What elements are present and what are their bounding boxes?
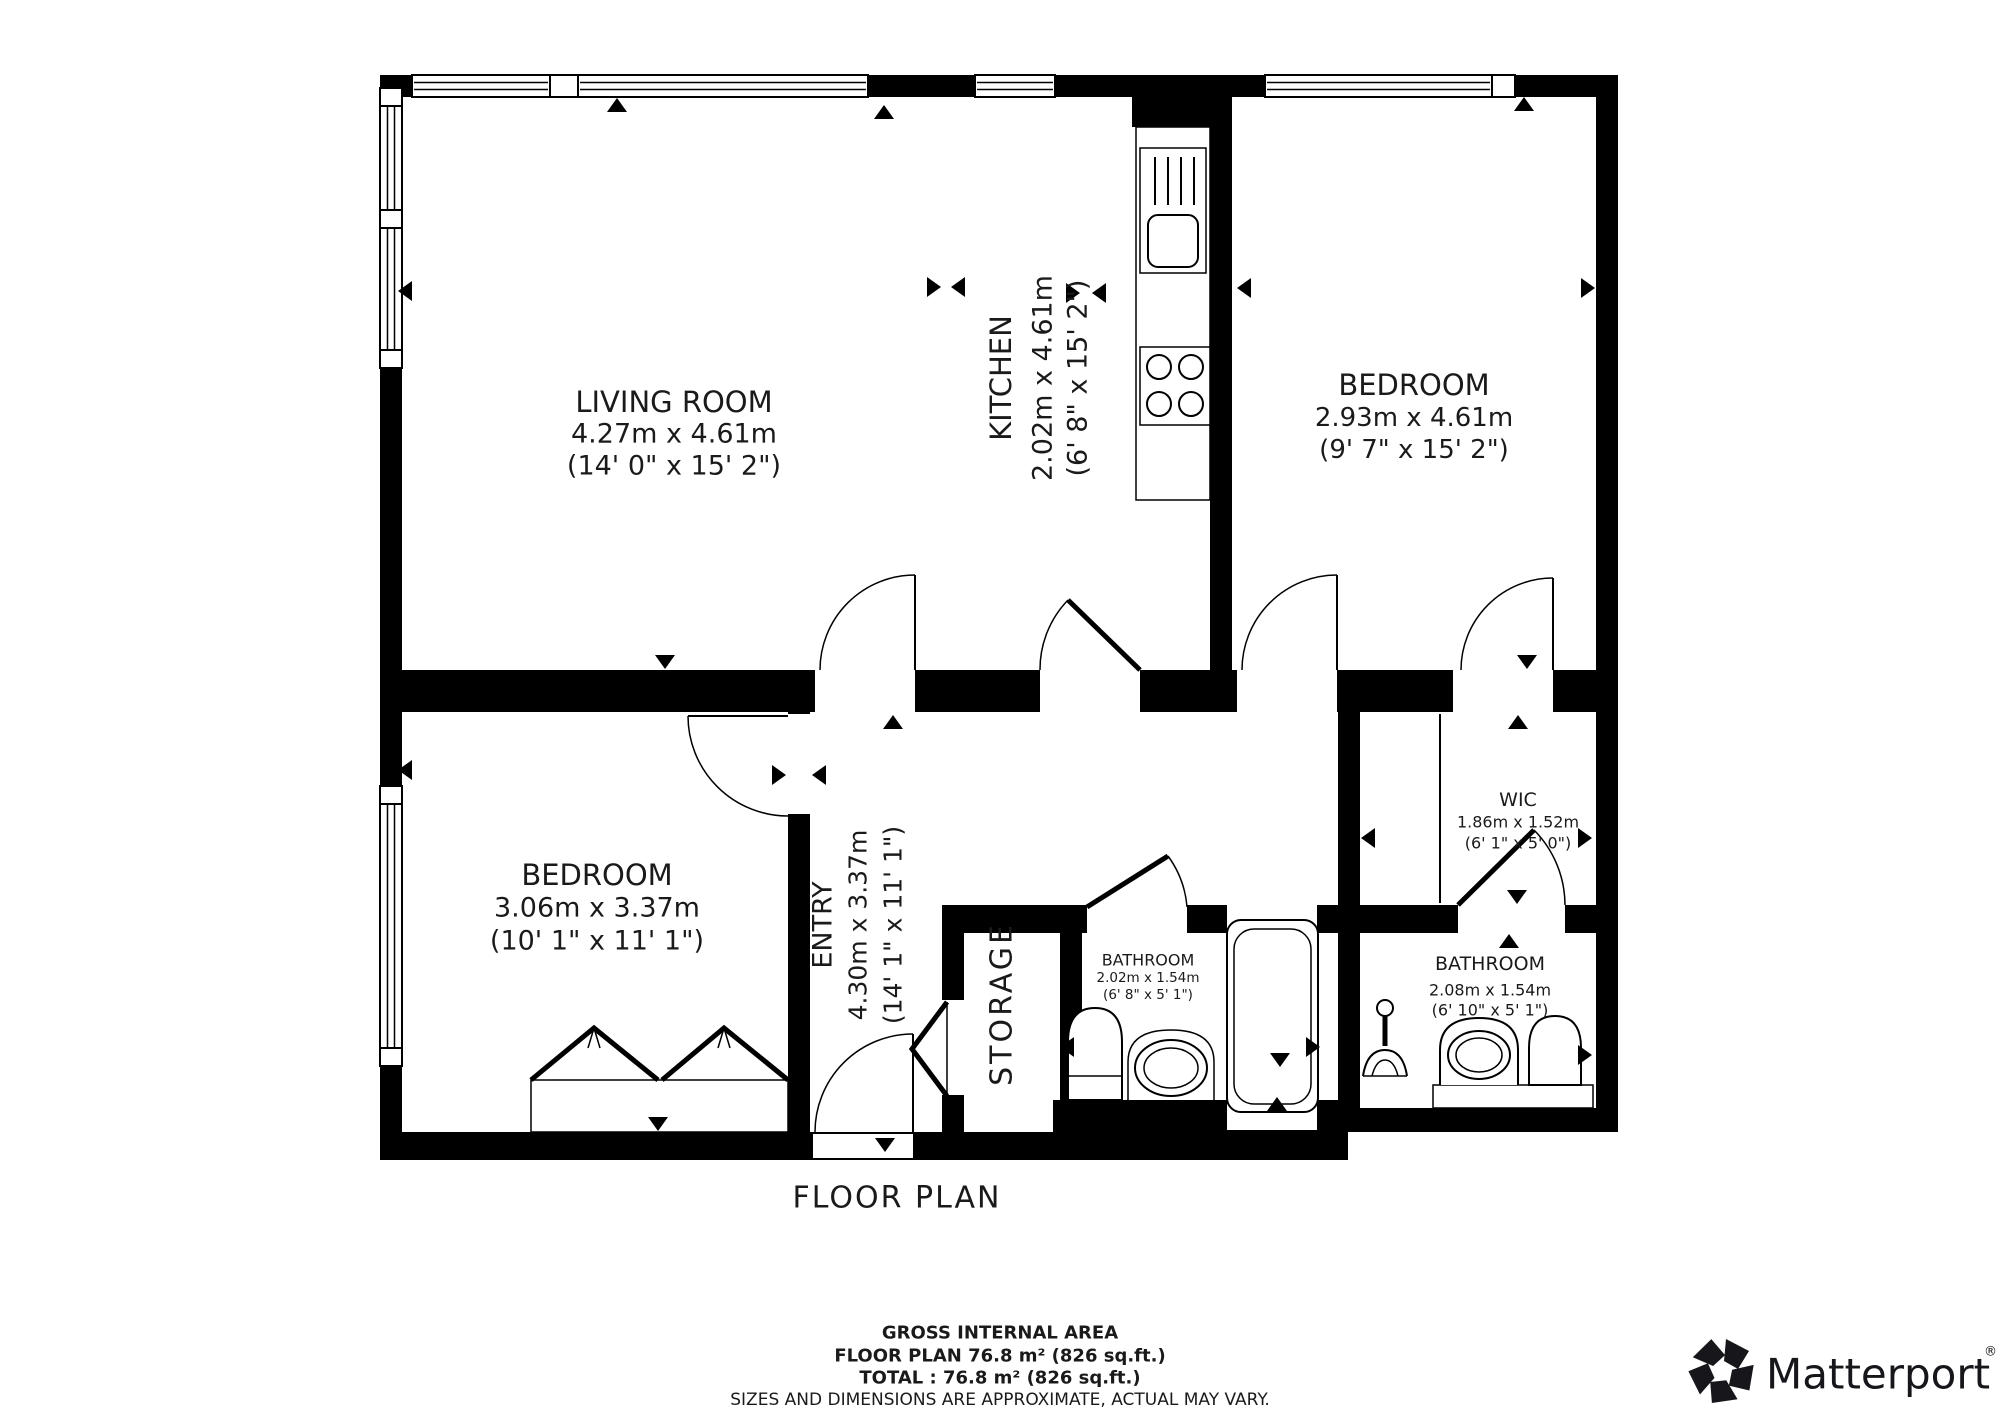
door-bedroom-right	[1242, 575, 1337, 670]
bedroom-right-metric: 2.93m x 4.61m	[1315, 403, 1513, 433]
wic-imperial: (6' 1" x 5' 0")	[1465, 834, 1572, 853]
opening-living-door	[815, 668, 915, 714]
window-sill-2	[380, 210, 402, 228]
kitchen-metric: 2.02m x 4.61m	[1028, 275, 1059, 481]
label-bedroom-right: BEDROOM 2.93m x 4.61m (9' 7" x 15' 2")	[1315, 368, 1513, 465]
entry-name: ENTRY	[808, 881, 839, 969]
wall-bath-left-top-c	[1317, 905, 1360, 933]
label-kitchen: KITCHEN 2.02m x 4.61m (6' 8" x 15' 2")	[984, 275, 1094, 481]
bedroom-left-name: BEDROOM	[521, 858, 672, 892]
sink-right	[1440, 1018, 1518, 1085]
wall-bath-left-top-b	[1187, 905, 1227, 933]
kitchen-stove	[1140, 347, 1210, 425]
toilet-left	[1068, 1008, 1122, 1100]
door-living-room	[820, 575, 915, 670]
wall-bath-right-bottom	[1338, 1108, 1618, 1132]
window-bedroom-left-wall	[380, 786, 402, 1066]
vanity-counter-right	[1433, 1085, 1593, 1108]
wall-storage-left-upper	[942, 905, 964, 1000]
door-wic-from-bedroom	[1461, 578, 1553, 670]
closet-bedroom-left	[531, 1028, 788, 1132]
sink-left	[1128, 1030, 1214, 1100]
opening-wic-door	[1453, 668, 1553, 714]
window-living-top-1	[412, 75, 550, 97]
bathroom-right-name: BATHROOM	[1435, 953, 1545, 975]
label-living-room: LIVING ROOM 4.27m x 4.61m (14' 0" x 15' …	[567, 385, 781, 482]
window-sill-1	[380, 88, 402, 106]
bathroom-left-imperial: (6' 8" x 5' 1")	[1103, 987, 1193, 1003]
footer-total-area: TOTAL : 76.8 m² (826 sq.ft.)	[859, 1368, 1140, 1389]
kitchen-name: KITCHEN	[984, 315, 1018, 441]
wall-right	[1596, 75, 1618, 1132]
bedroom-left-metric: 3.06m x 3.37m	[494, 893, 700, 924]
wic-name: WIC	[1499, 789, 1537, 811]
storage-name: STORAGE	[985, 922, 1020, 1086]
registered-mark: ®	[1984, 1345, 1997, 1360]
living-room-metric: 4.27m x 4.61m	[571, 419, 777, 450]
opening-bedroom-left-door	[786, 714, 812, 814]
opening-front-door	[813, 1134, 913, 1158]
bathroom-right-imperial: (6' 10" x 5' 1")	[1432, 1001, 1549, 1020]
page-title: FLOOR PLAN	[793, 1181, 1002, 1216]
label-entry: ENTRY 4.30m x 3.37m (14' 1" x 11' 1")	[808, 826, 908, 1024]
kitchen-sink-unit	[1140, 148, 1206, 273]
label-bedroom-left: BEDROOM 3.06m x 3.37m (10' 1" x 11' 1")	[490, 858, 704, 957]
living-room-name: LIVING ROOM	[575, 385, 772, 419]
kitchen-imperial: (6' 8" x 15' 2")	[1063, 280, 1094, 477]
matterport-wordmark: Matterport	[1766, 1350, 1990, 1399]
door-storage-bifold	[912, 1002, 947, 1096]
window-kitchen-top	[975, 75, 1055, 97]
entry-metric: 4.30m x 3.37m	[844, 830, 873, 1021]
shower-fixture	[1363, 1000, 1407, 1076]
footer-gross-internal-area: GROSS INTERNAL AREA	[882, 1323, 1118, 1344]
bathroom-right-metric: 2.08m x 1.54m	[1429, 981, 1551, 1000]
label-bathroom-left: BATHROOM 2.02m x 1.54m (6' 8" x 5' 1")	[1097, 951, 1200, 1004]
doors	[688, 575, 1565, 1132]
wall-wic-bottom-a	[1360, 905, 1458, 933]
footer: GROSS INTERNAL AREA FLOOR PLAN 76.8 m² (…	[730, 1323, 1269, 1410]
wic-metric: 1.86m x 1.52m	[1457, 813, 1579, 832]
window-living-top-2	[578, 75, 868, 97]
window-sill-5	[380, 1048, 402, 1066]
footer-disclaimer: SIZES AND DIMENSIONS ARE APPROXIMATE, AC…	[730, 1390, 1269, 1410]
matterport-logo: Matterport ®	[1681, 1335, 1997, 1410]
door-kitchen	[1040, 600, 1140, 670]
bathtub	[1227, 920, 1318, 1112]
wall-storage-left-lower	[942, 1095, 964, 1160]
bedroom-left-imperial: (10' 1" x 11' 1")	[490, 926, 704, 957]
window-sill-4	[380, 786, 402, 804]
floor-plan-page: LIVING ROOM 4.27m x 4.61m (14' 0" x 15' …	[0, 0, 2000, 1410]
label-bathroom-right: BATHROOM 2.08m x 1.54m (6' 10" x 5' 1")	[1429, 953, 1551, 1020]
door-front-entry	[815, 1034, 913, 1132]
entry-imperial: (14' 1" x 11' 1")	[879, 826, 908, 1024]
toilet-right	[1529, 1016, 1581, 1085]
window-mullion	[550, 75, 578, 97]
opening-kitchen-door	[1040, 668, 1140, 714]
matterport-pinwheel-icon	[1681, 1335, 1760, 1410]
window-bedroom-top	[1265, 75, 1492, 97]
footer-floor-plan-area: FLOOR PLAN 76.8 m² (826 sq.ft.)	[834, 1346, 1165, 1367]
opening-bedroom-door	[1237, 668, 1337, 714]
wall-kitchen-bedroom	[1210, 75, 1232, 712]
door-bathroom-left	[1087, 856, 1187, 907]
floor-plan-drawing: LIVING ROOM 4.27m x 4.61m (14' 0" x 15' …	[0, 0, 2000, 1410]
wall-mid-horizontal	[380, 670, 1618, 712]
bathroom-left-metric: 2.02m x 1.54m	[1097, 970, 1200, 986]
bedroom-right-name: BEDROOM	[1338, 368, 1489, 402]
bathroom-left-name: BATHROOM	[1102, 951, 1195, 970]
window-sill-3	[380, 350, 402, 368]
living-room-imperial: (14' 0" x 15' 2")	[567, 451, 781, 482]
window-end-box	[1492, 75, 1515, 97]
bedroom-right-imperial: (9' 7" x 15' 2")	[1319, 435, 1509, 465]
wall-wic-bottom-b	[1565, 905, 1596, 933]
label-wic: WIC 1.86m x 1.52m (6' 1" x 5' 0")	[1457, 789, 1579, 853]
